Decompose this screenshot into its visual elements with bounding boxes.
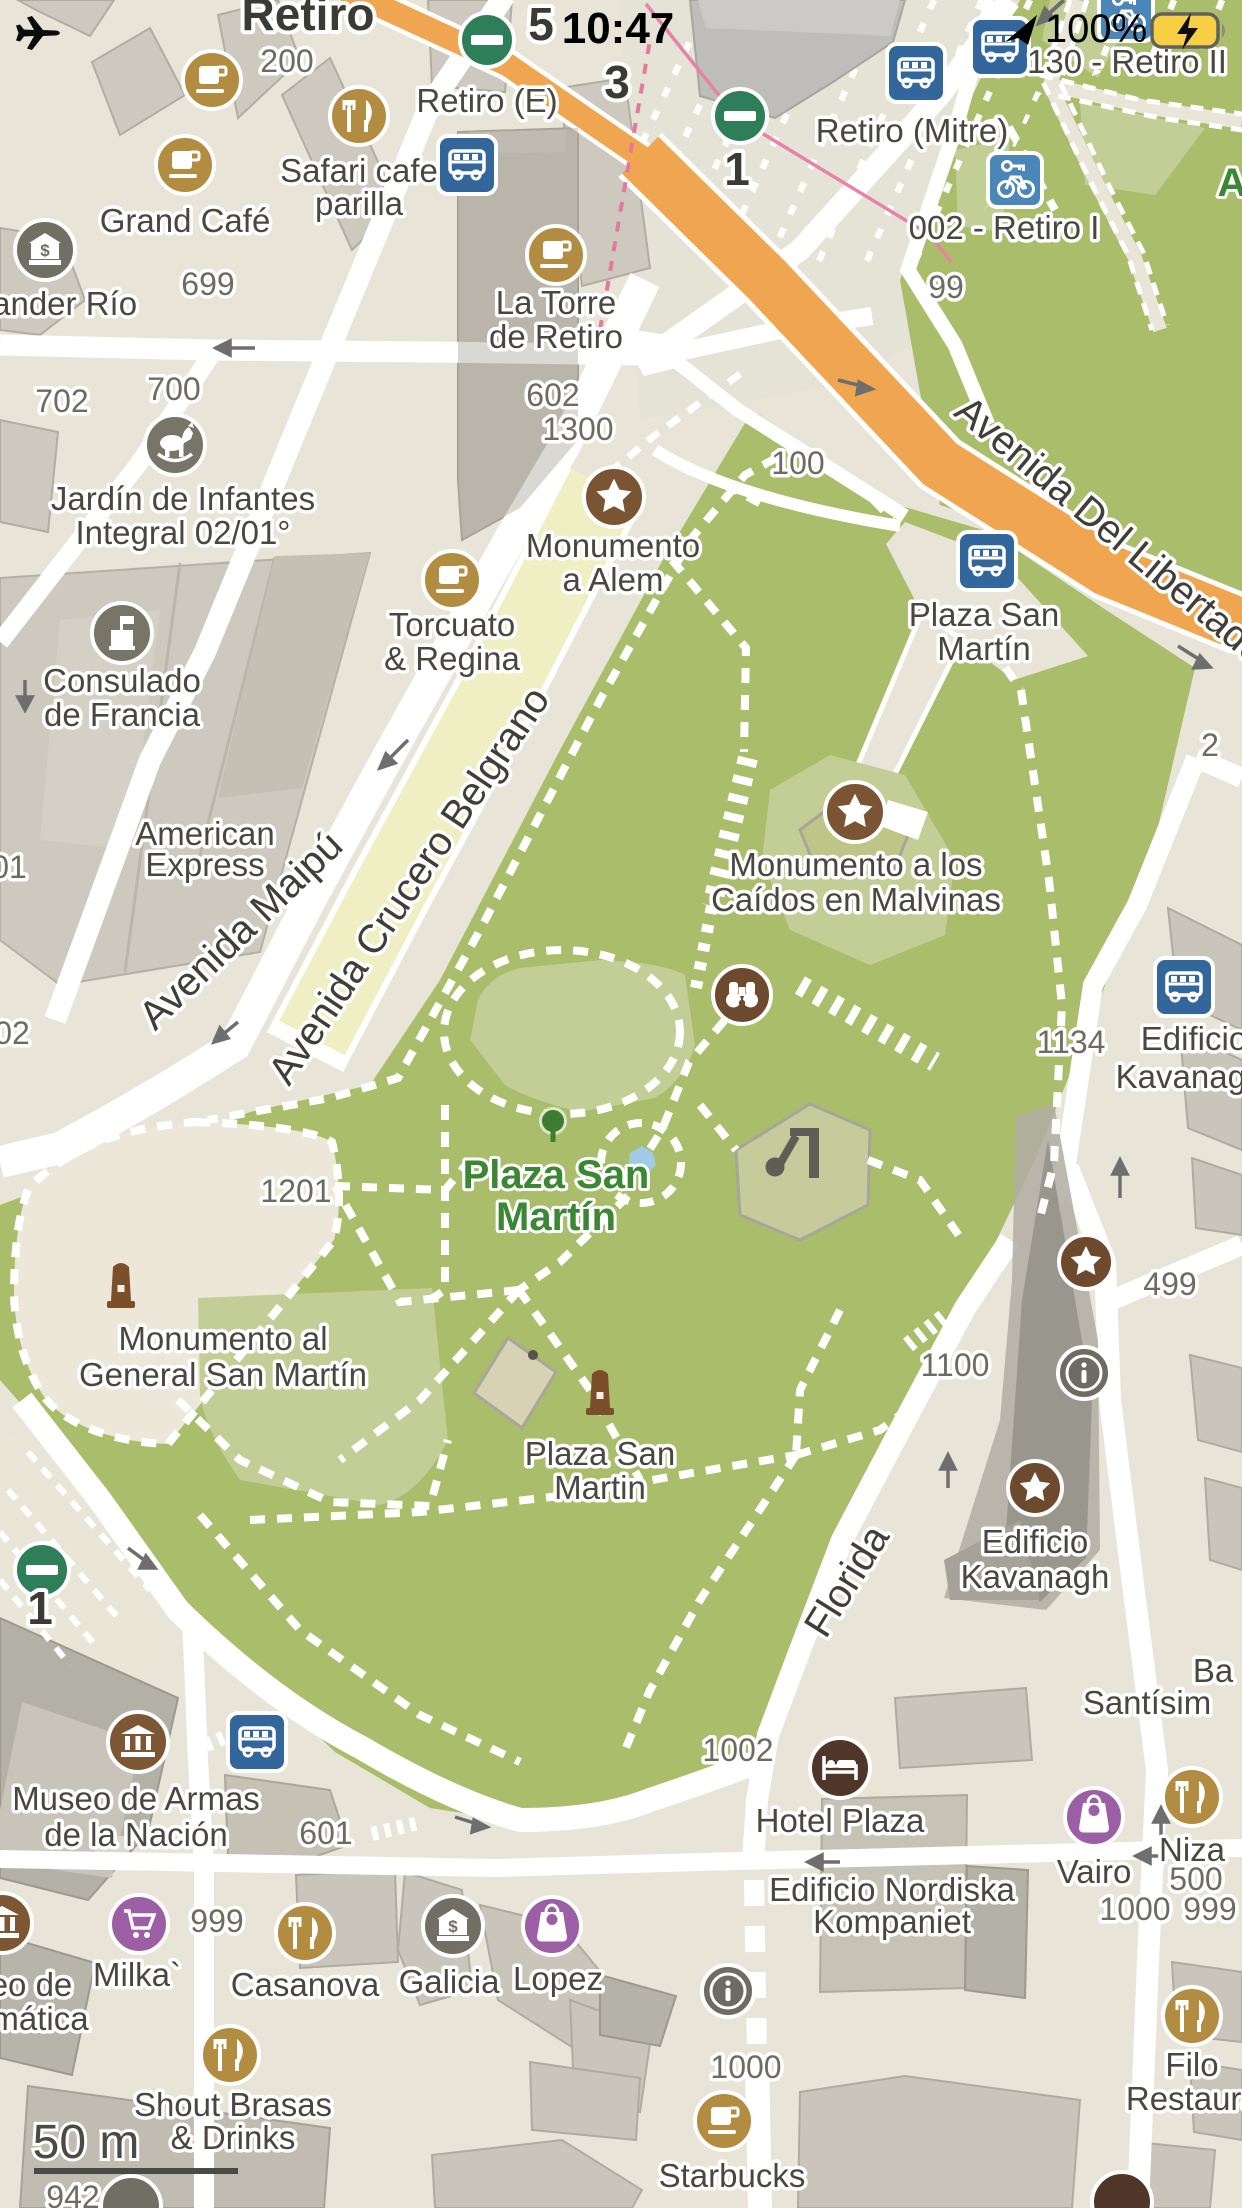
svg-text:Starbucks: Starbucks — [659, 2157, 806, 2194]
svg-text:99: 99 — [928, 269, 964, 305]
svg-text:1000: 1000 — [710, 2049, 781, 2085]
svg-text:Torcuato: Torcuato — [389, 606, 516, 643]
svg-text:Kavanagh: Kavanagh — [961, 1558, 1110, 1595]
svg-text:Galicia: Galicia — [399, 1963, 501, 2000]
svg-text:Hotel Plaza: Hotel Plaza — [756, 1802, 925, 1839]
svg-text:parilla: parilla — [315, 185, 404, 222]
svg-text:Plaza San: Plaza San — [909, 596, 1059, 633]
svg-text:Edificio: Edificio — [1141, 1020, 1242, 1057]
svg-text:& Drinks: & Drinks — [171, 2119, 296, 2156]
svg-text:699: 699 — [181, 266, 234, 302]
svg-text:499: 499 — [1143, 1266, 1196, 1302]
svg-text:Filo: Filo — [1165, 2046, 1218, 2083]
svg-text:1000: 1000 — [1099, 1891, 1170, 1927]
svg-text:702: 702 — [35, 383, 88, 419]
svg-text:1300: 1300 — [542, 411, 613, 447]
svg-text:Retiro (Mitre): Retiro (Mitre) — [816, 112, 1009, 149]
svg-text:50 m: 50 m — [33, 2116, 140, 2169]
svg-text:General San Martín: General San Martín — [79, 1356, 367, 1393]
svg-text:999: 999 — [190, 1903, 243, 1939]
svg-text:1: 1 — [27, 1582, 53, 1634]
svg-text:942: 942 — [46, 2179, 99, 2208]
svg-text:1100: 1100 — [921, 1347, 990, 1383]
svg-text:602: 602 — [526, 377, 579, 413]
svg-text:Casanova: Casanova — [231, 1966, 380, 2003]
svg-text:Santísim: Santísim — [1083, 1684, 1211, 1721]
svg-text:Consulado: Consulado — [43, 662, 201, 699]
svg-text:Monumento: Monumento — [526, 527, 700, 564]
svg-text:Martín: Martín — [937, 630, 1031, 667]
svg-text:Retiro (E): Retiro (E) — [416, 82, 557, 119]
svg-text:100: 100 — [771, 445, 824, 481]
svg-text:Museo de Armas: Museo de Armas — [12, 1780, 260, 1817]
svg-text:1134: 1134 — [1037, 1024, 1106, 1060]
svg-text:01: 01 — [0, 849, 27, 885]
svg-text:de la Nación: de la Nación — [44, 1816, 227, 1853]
svg-text:Shout Brasas: Shout Brasas — [134, 2086, 332, 2123]
svg-text:601: 601 — [299, 1815, 352, 1851]
svg-text:La Torre: La Torre — [496, 284, 616, 321]
svg-text:Jardín de Infantes: Jardín de Infantes — [51, 480, 315, 517]
svg-text:Caídos en Malvinas: Caídos en Malvinas — [711, 881, 1001, 918]
svg-text:eo de: eo de — [0, 1966, 72, 2003]
svg-text:999: 999 — [1183, 1891, 1236, 1927]
svg-text:tander Río: tander Río — [0, 285, 137, 322]
svg-text:Monumento a los: Monumento a los — [729, 846, 982, 883]
svg-text:02: 02 — [0, 1015, 30, 1051]
svg-text:1201: 1201 — [260, 1173, 331, 1209]
svg-text:002 - Retiro I: 002 - Retiro I — [909, 209, 1100, 246]
svg-text:Kavanagh: Kavanagh — [1116, 1058, 1242, 1095]
svg-text:A: A — [1218, 161, 1242, 205]
svg-text:3: 3 — [604, 56, 630, 108]
svg-text:10:47: 10:47 — [562, 4, 675, 53]
svg-text:Restauran: Restauran — [1126, 2080, 1242, 2117]
svg-text:Safari cafe: Safari cafe — [280, 152, 438, 189]
svg-text:Vairo: Vairo — [1057, 1853, 1132, 1890]
svg-text:Retiro: Retiro — [242, 0, 375, 40]
svg-text:a Alem: a Alem — [563, 561, 664, 598]
svg-text:Edificio: Edificio — [982, 1523, 1088, 1560]
svg-text:Plaza San: Plaza San — [525, 1435, 675, 1472]
svg-text:Monumento al: Monumento al — [118, 1320, 327, 1357]
svg-text:& Regina: & Regina — [384, 640, 520, 677]
svg-text:Grand Café: Grand Café — [100, 202, 271, 239]
svg-text:Plaza San: Plaza San — [463, 1153, 650, 1197]
svg-text:Martín: Martín — [496, 1195, 616, 1239]
svg-text:Express: Express — [145, 846, 264, 883]
svg-text:Niza: Niza — [1159, 1831, 1226, 1868]
svg-text:Lopez: Lopez — [513, 1960, 603, 1997]
svg-text:Milka`: Milka` — [93, 1956, 181, 1993]
svg-text:Martin: Martin — [554, 1469, 646, 1506]
svg-text:mática: mática — [0, 2000, 89, 2037]
svg-text:5: 5 — [528, 0, 554, 50]
svg-text:200: 200 — [260, 43, 313, 79]
svg-text:Integral 02/01°: Integral 02/01° — [75, 514, 290, 551]
svg-text:de Retiro: de Retiro — [489, 318, 623, 355]
svg-text:1: 1 — [724, 143, 750, 195]
svg-text:de Francia: de Francia — [44, 696, 201, 733]
svg-text:100%: 100% — [1045, 7, 1147, 51]
svg-text:700: 700 — [147, 371, 200, 407]
svg-text:1002: 1002 — [702, 1732, 773, 1768]
svg-text:Kompaniet: Kompaniet — [813, 1903, 971, 1940]
svg-text:2: 2 — [1201, 727, 1219, 763]
